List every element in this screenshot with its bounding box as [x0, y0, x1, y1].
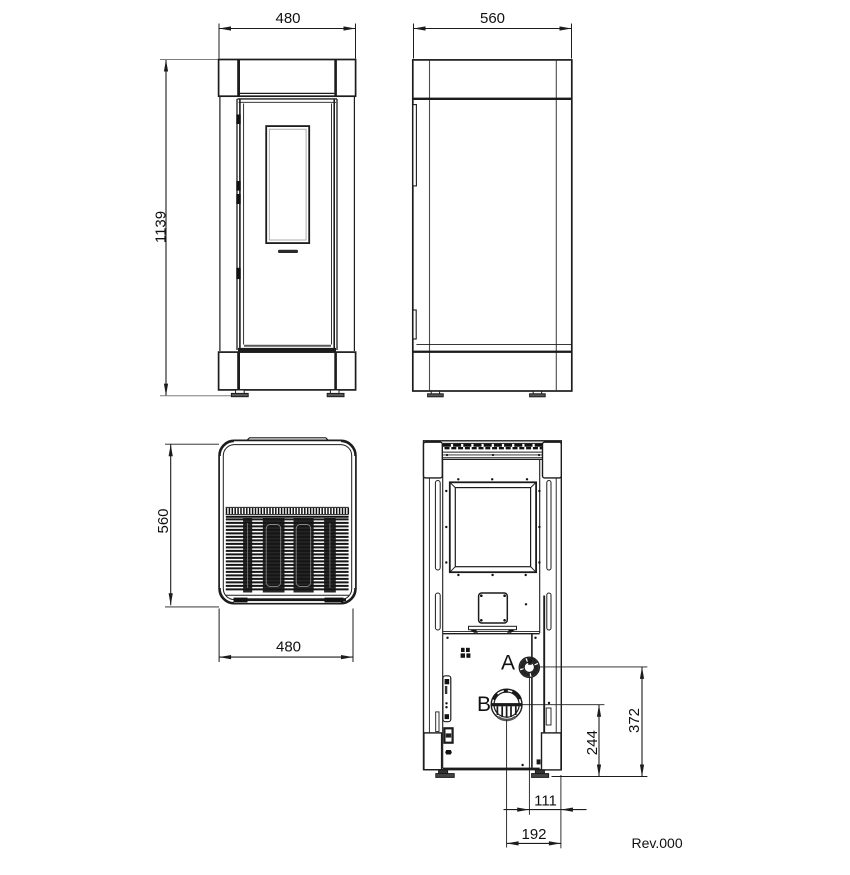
svg-text:480: 480	[275, 10, 300, 27]
svg-text:244: 244	[584, 730, 601, 755]
svg-text:1139: 1139	[152, 211, 169, 243]
svg-text:192: 192	[521, 826, 546, 843]
svg-text:A: A	[501, 651, 515, 674]
svg-text:560: 560	[155, 508, 172, 533]
svg-text:B: B	[477, 693, 491, 716]
svg-text:372: 372	[626, 708, 643, 733]
svg-text:560: 560	[480, 10, 505, 27]
svg-text:480: 480	[276, 638, 301, 655]
svg-text:111: 111	[534, 792, 557, 809]
svg-text:Rev.000: Rev.000	[632, 835, 683, 851]
